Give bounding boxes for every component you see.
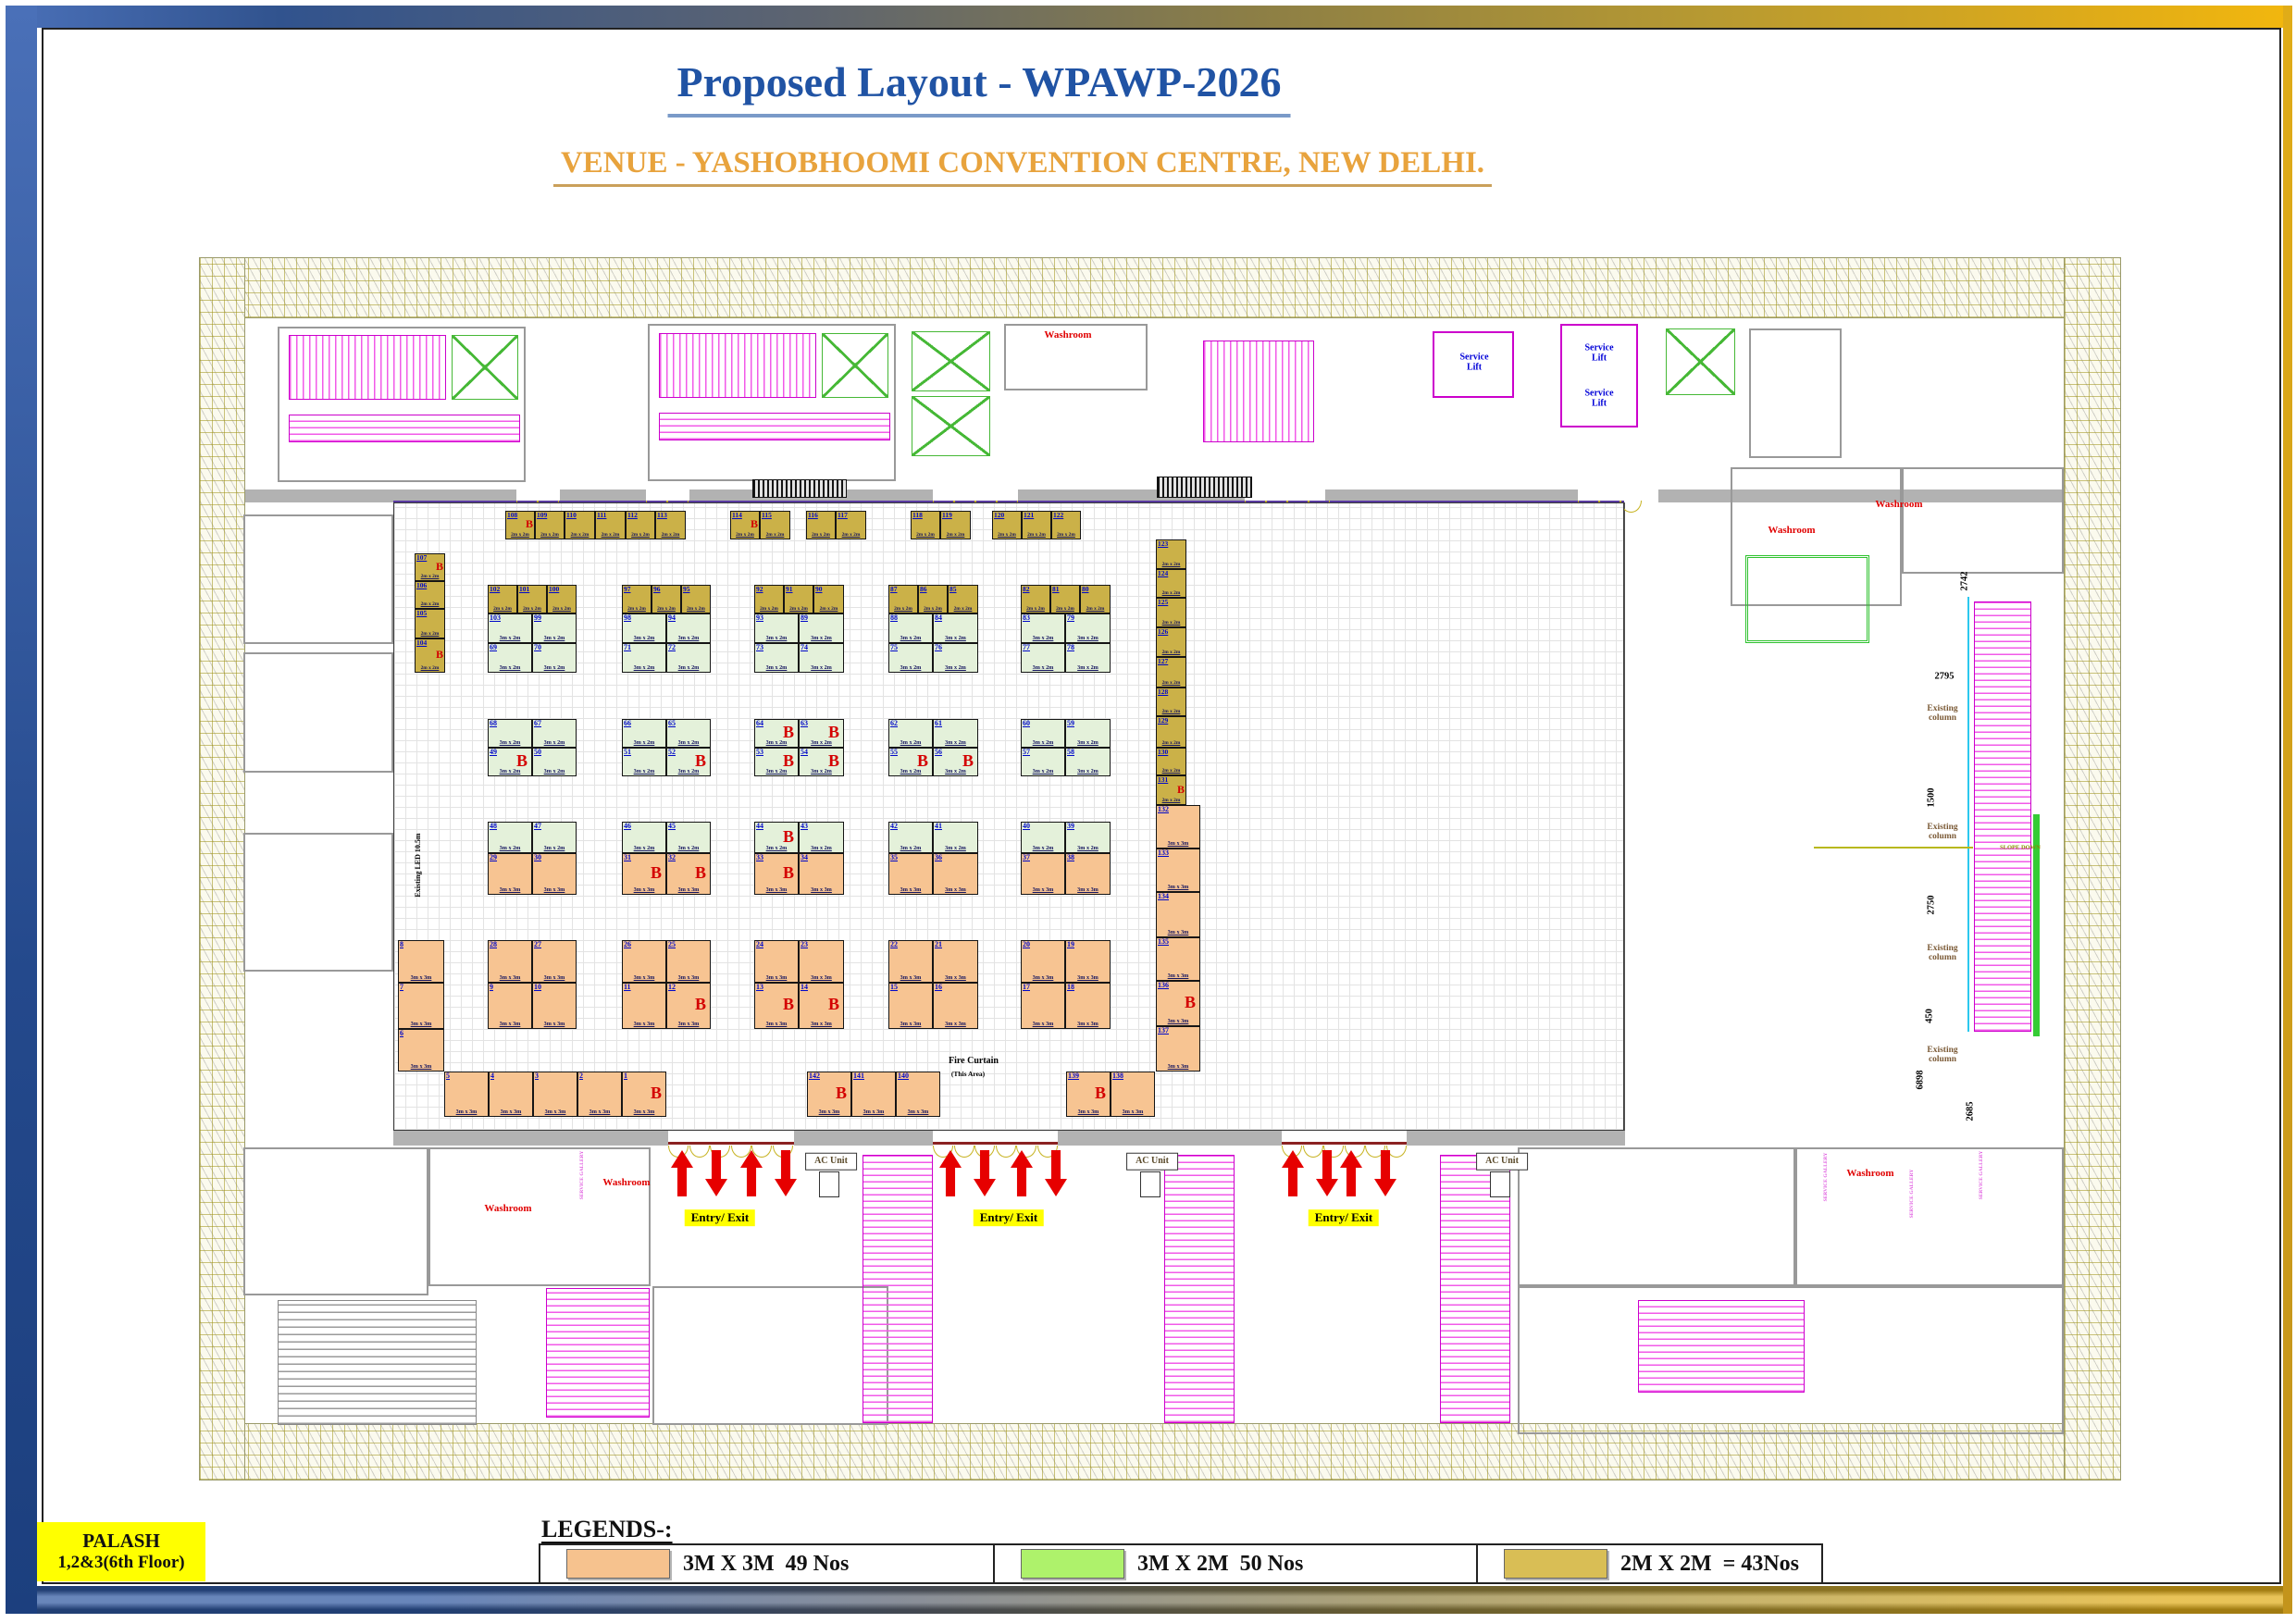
booth-number: 5: [446, 1072, 450, 1081]
entry-exit-label-1: Entry/ Exit: [685, 1209, 755, 1226]
booth-size: 3m x 3m: [934, 1022, 977, 1027]
booth-size: 3m x 2m: [800, 665, 843, 671]
booth-number: 23: [800, 941, 808, 949]
booth-number: 24: [756, 941, 763, 949]
booked-mark: B: [651, 1084, 662, 1101]
booth-number: 28: [490, 941, 497, 949]
room: [1749, 328, 1842, 458]
booth-number: 76: [935, 644, 942, 652]
booth-number: 14: [800, 984, 808, 992]
booth-number: 103: [490, 614, 501, 623]
booth-number: 57: [1023, 749, 1030, 757]
service-gallery-label-3: SERVICE GALLERY: [1910, 1170, 1916, 1219]
booth-size: 3m x 3m: [1157, 973, 1199, 979]
lift-shaft: [1666, 328, 1735, 395]
floor-tag-line1: PALASH: [82, 1530, 160, 1553]
booth-size: 2m x 2m: [627, 533, 654, 538]
ac-unit-label-1: AC Unit: [805, 1153, 857, 1171]
booth-size: 2m x 2m: [1022, 607, 1049, 612]
booth-size: 3m x 3m: [852, 1109, 895, 1115]
booth-10: 103m x 3m: [532, 983, 577, 1029]
legends-title: LEGENDS-:: [541, 1516, 673, 1543]
booth-number: 33: [756, 854, 763, 862]
booth-number: 87: [890, 586, 898, 593]
booth-25: 253m x 3m: [666, 940, 711, 983]
booked-mark: B: [751, 518, 758, 529]
booth-size: 3m x 3m: [1157, 1019, 1199, 1024]
booth-size: 3m x 3m: [800, 975, 843, 981]
booth-number: 138: [1112, 1072, 1123, 1081]
booth-58: 583m x 2m: [1065, 748, 1111, 776]
booth-22: 223m x 3m: [888, 940, 933, 983]
booth-76: 763m x 2m: [933, 643, 978, 673]
dim-6898: 6898: [1915, 1071, 1925, 1090]
booth-67: 673m x 2m: [532, 719, 577, 748]
booth-size: 3m x 2m: [667, 846, 710, 851]
room: [1745, 555, 1869, 643]
booth-47: 473m x 2m: [532, 822, 577, 853]
booth-3: 33m x 3m: [533, 1072, 577, 1117]
booth-119: 1192m x 2m: [940, 511, 971, 539]
booth-27: 273m x 3m: [532, 940, 577, 983]
booth-number: 55: [890, 749, 898, 757]
booth-size: 2m x 2m: [814, 607, 843, 612]
booth-71: 713m x 2m: [622, 643, 666, 673]
booth-size: 2m x 2m: [1157, 621, 1185, 626]
booth-size: 3m x 3m: [1067, 1109, 1110, 1115]
booth-140: 1403m x 3m: [896, 1072, 940, 1117]
legend-label: 3M X 2M 50 Nos: [1137, 1552, 1303, 1577]
stair-block: [278, 1300, 477, 1425]
booth-size: 3m x 2m: [934, 636, 977, 641]
booth-86: 862m x 2m: [918, 585, 948, 613]
booth-number: 11: [624, 984, 631, 992]
booth-size: 3m x 3m: [934, 975, 977, 981]
booked-mark: B: [526, 518, 533, 529]
booth-size: 3m x 2m: [934, 665, 977, 671]
booth-129: 1292m x 2m: [1156, 716, 1186, 748]
booth-size: 3m x 2m: [533, 665, 576, 671]
booth-size: 3m x 3m: [800, 1022, 843, 1027]
booth-number: 70: [534, 644, 541, 652]
booth-28: 283m x 3m: [488, 940, 532, 983]
booth-size: 3m x 2m: [623, 846, 665, 851]
booth-number: 44: [756, 823, 763, 831]
booth-number: 27: [534, 941, 541, 949]
booth-138: 1383m x 3m: [1111, 1072, 1155, 1117]
lift-shaft: [822, 333, 888, 398]
booth-number: 141: [853, 1072, 864, 1081]
page-border-left: [6, 6, 37, 1614]
booth-size: 3m x 3m: [623, 887, 665, 893]
booth-size: 3m x 3m: [889, 887, 932, 893]
booth-number: 4: [490, 1072, 494, 1081]
booth-size: 3m x 3m: [623, 1109, 665, 1115]
booth-number: 100: [549, 586, 559, 593]
booth-136: 1363m x 3mB: [1156, 981, 1200, 1026]
fire-curtain-area-label: (This Area): [951, 1071, 985, 1078]
booth-size: 3m x 2m: [1066, 636, 1110, 641]
floor-plan-page: Proposed Layout - WPAWP-2026 VENUE - YAS…: [0, 0, 2296, 1623]
booth-number: 127: [1158, 658, 1168, 665]
booth-142: 1423m x 3mB: [807, 1072, 851, 1117]
booth-137: 1373m x 3m: [1156, 1026, 1200, 1072]
booth-size: 3m x 3m: [1022, 975, 1064, 981]
booth-122: 1222m x 2m: [1051, 511, 1081, 539]
booth-134: 1343m x 3m: [1156, 892, 1200, 937]
dim-2795: 2795: [1935, 671, 1955, 681]
booth-113: 1132m x 2m: [655, 511, 686, 539]
booth-size: 3m x 3m: [889, 975, 932, 981]
booth-104: 1042m x 2mB: [415, 638, 445, 673]
booth-53: 533m x 2mB: [754, 748, 799, 776]
booth-78: 783m x 2m: [1065, 643, 1111, 673]
booth-17: 173m x 3m: [1021, 983, 1065, 1029]
booth-number: 117: [838, 512, 848, 519]
booth-size: 2m x 2m: [1157, 563, 1185, 567]
booth-number: 31: [624, 854, 631, 862]
booked-mark: B: [783, 996, 794, 1012]
escalator-rail: [1967, 597, 1969, 1032]
booth-number: 108: [507, 512, 517, 519]
booth-size: 3m x 2m: [1022, 846, 1064, 851]
booth-number: 92: [756, 586, 763, 593]
booth-96: 962m x 2m: [652, 585, 681, 613]
booth-number: 118: [912, 512, 923, 519]
booth-number: 98: [624, 614, 631, 623]
booked-mark: B: [1185, 994, 1196, 1010]
booth-number: 68: [490, 720, 497, 728]
booth-number: 26: [624, 941, 631, 949]
booth-90: 902m x 2m: [813, 585, 844, 613]
booth-number: 86: [920, 586, 927, 593]
booth-size: 2m x 2m: [416, 602, 444, 607]
booth-98: 983m x 2m: [622, 613, 666, 643]
booth-29: 293m x 3m: [488, 853, 532, 895]
room: [243, 514, 393, 644]
booth-number: 97: [624, 586, 631, 593]
booth-size: 3m x 3m: [1066, 887, 1110, 893]
dim-2742: 2742: [1959, 572, 1969, 591]
booth-121: 1212m x 2m: [1022, 511, 1051, 539]
booth-60: 603m x 2m: [1021, 719, 1065, 748]
booked-mark: B: [783, 864, 794, 881]
ac-unit-duct: [819, 1171, 839, 1197]
booth-number: 90: [815, 586, 823, 593]
booth-number: 113: [657, 512, 667, 519]
existing-led-label: Existing LED 10.5m: [415, 833, 422, 897]
booth-size: 2m x 2m: [919, 607, 947, 612]
booth-size: 3m x 2m: [667, 740, 710, 746]
booth-68: 683m x 2m: [488, 719, 532, 748]
booth-number: 48: [490, 823, 497, 831]
booth-52: 523m x 2mB: [666, 748, 711, 776]
legend-item-2: 3M X 2M 50 Nos: [995, 1543, 1478, 1584]
booth-73: 733m x 2m: [754, 643, 799, 673]
booth-size: 3m x 3m: [533, 975, 576, 981]
booth-139: 1393m x 3mB: [1066, 1072, 1111, 1117]
booth-size: 2m x 2m: [993, 533, 1021, 538]
booth-35: 353m x 3m: [888, 853, 933, 895]
page-title: Proposed Layout - WPAWP-2026: [668, 57, 1291, 118]
booth-111: 1112m x 2m: [595, 511, 626, 539]
booth-100: 1002m x 2m: [547, 585, 577, 613]
room: [243, 1147, 428, 1295]
escalator: [1638, 1300, 1805, 1393]
booth-size: 3m x 2m: [623, 665, 665, 671]
room: [1902, 467, 2064, 574]
booth-size: 2m x 2m: [761, 533, 789, 538]
booth-66: 663m x 2m: [622, 719, 666, 748]
booth-number: 88: [890, 614, 898, 623]
service-lift-label-1: Service Lift: [1453, 353, 1496, 373]
booth-size: 2m x 2m: [518, 607, 546, 612]
booth-101: 1012m x 2m: [517, 585, 547, 613]
booth-69: 693m x 2m: [488, 643, 532, 673]
booth-size: 3m x 2m: [623, 636, 665, 641]
booth-size: 3m x 2m: [755, 665, 798, 671]
booth-107: 1072m x 2mB: [415, 553, 445, 581]
room: [652, 1286, 888, 1425]
booked-mark: B: [695, 996, 706, 1012]
booth-2: 23m x 3m: [577, 1072, 622, 1117]
booth-size: 2m x 2m: [1157, 650, 1185, 655]
stairwell: [1203, 341, 1314, 442]
booth-number: 65: [668, 720, 676, 728]
booked-mark: B: [962, 752, 974, 769]
booth-size: 2m x 2m: [941, 533, 970, 538]
booth-size: 3m x 3m: [755, 1022, 798, 1027]
booth-number: 77: [1023, 644, 1030, 652]
service-gallery-label-4: SERVICE GALLERY: [1980, 1151, 1985, 1200]
booth-number: 8: [400, 941, 403, 949]
booked-mark: B: [836, 1084, 847, 1101]
booth-103: 1033m x 2m: [488, 613, 532, 643]
booth-number: 128: [1158, 688, 1168, 696]
booth-50: 503m x 2m: [532, 748, 577, 776]
booth-1: 13m x 3mB: [622, 1072, 666, 1117]
booth-81: 812m x 2m: [1050, 585, 1080, 613]
booth-95: 952m x 2m: [681, 585, 711, 613]
entrance-grille: [1157, 477, 1252, 498]
booth-size: 2m x 2m: [536, 533, 564, 538]
booth-size: 3m x 3m: [800, 887, 843, 893]
booth-number: 50: [534, 749, 541, 757]
booked-mark: B: [917, 752, 928, 769]
booth-49: 493m x 2mB: [488, 748, 532, 776]
booth-number: 32: [668, 854, 676, 862]
booked-mark: B: [516, 752, 527, 769]
booth-number: 42: [890, 823, 898, 831]
booth-size: 3m x 3m: [667, 1022, 710, 1027]
service-gallery-label-1: SERVICE GALLERY: [580, 1151, 586, 1200]
booth-55: 553m x 2mB: [888, 748, 933, 776]
booth-93: 933m x 2m: [754, 613, 799, 643]
booth-size: 2m x 2m: [682, 607, 710, 612]
booth-124: 1242m x 2m: [1156, 569, 1186, 598]
entry-threshold: [668, 1142, 794, 1145]
booth-size: 3m x 3m: [1066, 1022, 1110, 1027]
booked-mark: B: [436, 561, 443, 572]
booth-size: 3m x 2m: [889, 740, 932, 746]
ac-unit-duct: [1140, 1171, 1160, 1197]
booth-size: 3m x 2m: [533, 769, 576, 774]
legend-swatch: [566, 1549, 670, 1579]
washroom-label-top: Washroom: [1044, 330, 1091, 341]
booth-37: 373m x 3m: [1021, 853, 1065, 895]
booth-40: 403m x 2m: [1021, 822, 1065, 853]
booth-123: 1232m x 2m: [1156, 539, 1186, 569]
booth-size: 2m x 2m: [416, 666, 444, 671]
room: [1795, 1147, 2064, 1286]
ac-unit-label-2: AC Unit: [1126, 1153, 1178, 1171]
booth-133: 1333m x 3m: [1156, 849, 1200, 892]
booth-51: 513m x 2m: [622, 748, 666, 776]
booth-number: 89: [800, 614, 808, 623]
booth-number: 80: [1082, 586, 1089, 593]
booth-size: 3m x 2m: [533, 636, 576, 641]
booth-34: 343m x 3m: [799, 853, 844, 895]
booth-number: 105: [416, 610, 427, 617]
booth-number: 122: [1053, 512, 1063, 519]
booth-number: 96: [653, 586, 661, 593]
booth-size: 3m x 3m: [889, 1022, 932, 1027]
dim-450: 450: [1924, 1009, 1934, 1023]
booth-42: 423m x 2m: [888, 822, 933, 853]
wall: [1407, 1131, 1625, 1146]
booth-63: 633m x 2mB: [799, 719, 844, 748]
washroom-label-bottomleft-2: Washroom: [602, 1178, 650, 1189]
entry-exit-label-2: Entry/ Exit: [974, 1209, 1044, 1226]
booth-number: 71: [624, 644, 631, 652]
booth-77: 773m x 2m: [1021, 643, 1065, 673]
booth-26: 263m x 3m: [622, 940, 666, 983]
booth-size: 3m x 3m: [667, 975, 710, 981]
booth-size: 2m x 2m: [889, 607, 917, 612]
booth-size: 3m x 2m: [533, 740, 576, 746]
booth-number: 139: [1068, 1072, 1079, 1081]
booth-5: 53m x 3m: [444, 1072, 489, 1117]
booth-105: 1052m x 2m: [415, 609, 445, 638]
booth-number: 121: [1024, 512, 1034, 519]
booth-79: 793m x 2m: [1065, 613, 1111, 643]
booth-size: 3m x 3m: [1157, 841, 1199, 847]
wall: [1058, 1131, 1282, 1146]
booth-size: 2m x 2m: [565, 533, 594, 538]
booth-56: 563m x 2mB: [933, 748, 978, 776]
booth-64: 643m x 2mB: [754, 719, 799, 748]
booth-size: 2m x 2m: [489, 607, 516, 612]
entry-threshold: [933, 1142, 1058, 1145]
washroom-label-bottomleft-1: Washroom: [484, 1204, 531, 1215]
booth-number: 111: [597, 512, 606, 519]
booth-number: 83: [1023, 614, 1030, 623]
booth-number: 20: [1023, 941, 1030, 949]
booth-number: 58: [1067, 749, 1074, 757]
booth-size: 3m x 2m: [1066, 846, 1110, 851]
booth-number: 7: [400, 984, 403, 992]
booth-number: 136: [1158, 982, 1169, 990]
booth-23: 233m x 3m: [799, 940, 844, 983]
booth-number: 45: [668, 823, 676, 831]
escalator: [1164, 1155, 1235, 1423]
booth-number: 72: [668, 644, 676, 652]
booth-size: 3m x 2m: [667, 665, 710, 671]
booth-size: 2m x 2m: [623, 607, 651, 612]
booth-size: 2m x 2m: [1157, 681, 1185, 686]
booth-65: 653m x 2m: [666, 719, 711, 748]
booth-number: 82: [1023, 586, 1030, 593]
booth-132: 1323m x 3m: [1156, 805, 1200, 849]
booth-size: 3m x 3m: [667, 887, 710, 893]
booth-18: 183m x 3m: [1065, 983, 1111, 1029]
booth-number: 25: [668, 941, 676, 949]
booth-117: 1172m x 2m: [836, 511, 866, 539]
booth-number: 131: [1158, 776, 1168, 784]
booth-size: 3m x 3m: [755, 975, 798, 981]
lift-shaft: [912, 331, 990, 391]
stair-run: [289, 415, 520, 442]
service-lift-shaft: [1560, 324, 1638, 427]
legend-item-3: 2M X 2M = 43Nos: [1478, 1543, 1823, 1584]
booth-number: 132: [1158, 806, 1169, 814]
booth-size: 3m x 2m: [1022, 769, 1064, 774]
booth-size: 3m x 2m: [489, 665, 531, 671]
booth-116: 1162m x 2m: [806, 511, 836, 539]
booth-6: 63m x 3m: [398, 1029, 444, 1072]
booth-number: 39: [1067, 823, 1074, 831]
booth-number: 142: [809, 1072, 820, 1081]
booth-70: 703m x 2m: [532, 643, 577, 673]
booth-number: 93: [756, 614, 763, 623]
booth-size: 3m x 3m: [533, 887, 576, 893]
booth-number: 18: [1067, 984, 1074, 992]
booth-size: 3m x 2m: [623, 769, 665, 774]
booth-number: 107: [416, 554, 427, 562]
booth-number: 63: [800, 720, 808, 728]
booth-size: 3m x 2m: [934, 846, 977, 851]
booth-11: 113m x 3m: [622, 983, 666, 1029]
booth-7: 73m x 3m: [398, 983, 444, 1029]
lift-shaft: [912, 396, 990, 456]
stairwell: [659, 333, 816, 398]
booth-24: 243m x 3m: [754, 940, 799, 983]
stair-run: [659, 413, 890, 440]
booth-number: 19: [1067, 941, 1074, 949]
booth-number: 43: [800, 823, 808, 831]
slope-line: [1814, 847, 1973, 849]
booth-number: 79: [1067, 614, 1074, 623]
booth-46: 463m x 2m: [622, 822, 666, 853]
booth-size: 2m x 2m: [416, 632, 444, 637]
booth-number: 85: [949, 586, 957, 593]
room: [1518, 1147, 1795, 1286]
booth-30: 303m x 3m: [532, 853, 577, 895]
booth-size: 2m x 2m: [1157, 799, 1185, 803]
booth-size: 2m x 2m: [731, 533, 759, 538]
wall: [393, 1131, 668, 1146]
venue-subtitle: VENUE - YASHOBHOOMI CONVENTION CENTRE, N…: [553, 146, 1492, 187]
booked-mark: B: [695, 752, 706, 769]
booth-number: 16: [935, 984, 942, 992]
booth-92: 922m x 2m: [754, 585, 784, 613]
booth-62: 623m x 2m: [888, 719, 933, 748]
booth-size: 2m x 2m: [656, 533, 685, 538]
booth-21: 213m x 3m: [933, 940, 978, 983]
dim-2685: 2685: [1965, 1102, 1975, 1121]
booth-number: 95: [683, 586, 690, 593]
booth-size: 3m x 3m: [399, 1064, 443, 1070]
